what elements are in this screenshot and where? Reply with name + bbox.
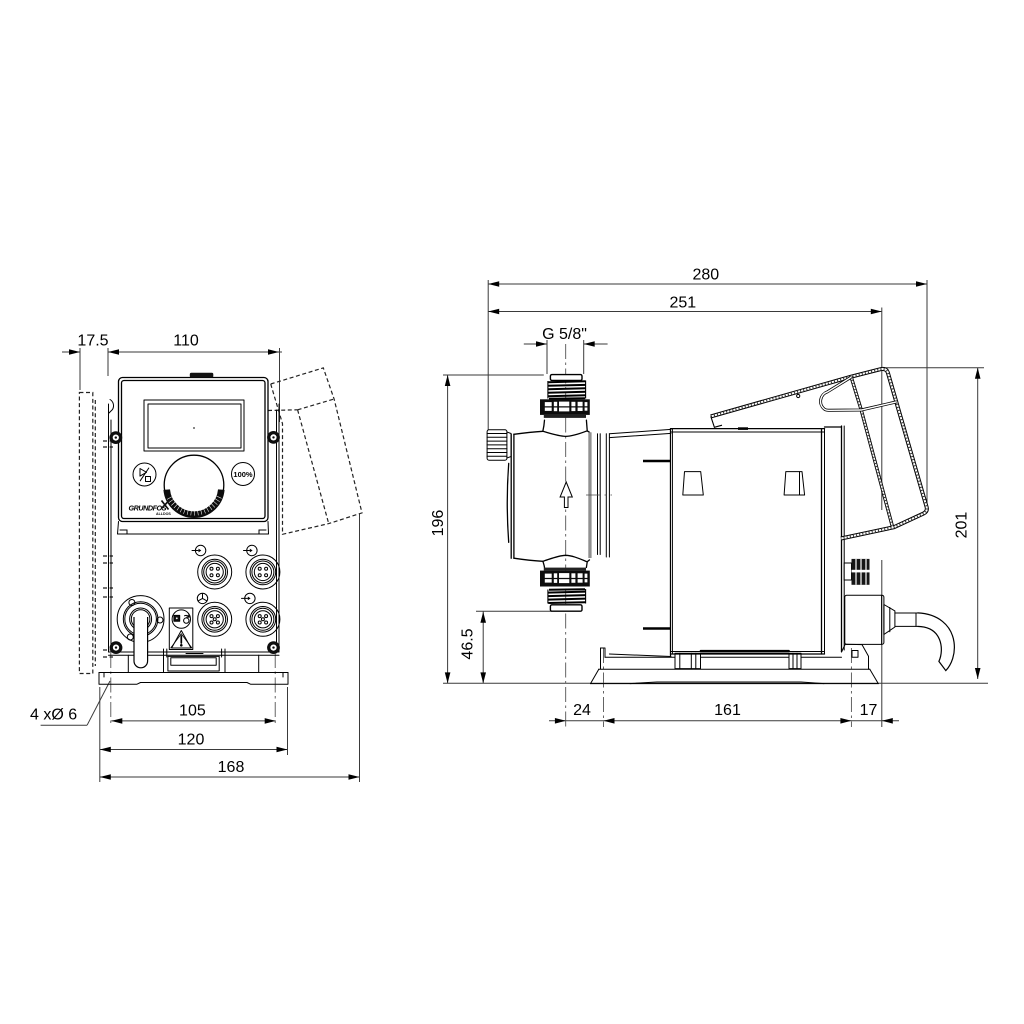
svg-text:201: 201	[954, 512, 971, 539]
svg-text:105: 105	[179, 702, 206, 719]
svg-text:4 xØ 6: 4 xØ 6	[30, 706, 77, 723]
svg-text:17.5: 17.5	[77, 333, 108, 350]
svg-text:196: 196	[430, 510, 447, 537]
svg-text:G 5/8": G 5/8"	[542, 326, 587, 343]
svg-text:17: 17	[860, 702, 878, 719]
svg-text:251: 251	[669, 294, 696, 311]
svg-text:ALLDOS: ALLDOS	[156, 512, 171, 516]
svg-text:280: 280	[692, 267, 719, 284]
svg-text:100%: 100%	[233, 470, 253, 479]
svg-text:120: 120	[178, 731, 205, 748]
svg-text:161: 161	[714, 702, 741, 719]
svg-text:46.5: 46.5	[460, 628, 477, 659]
svg-text:168: 168	[218, 759, 245, 776]
svg-text:110: 110	[173, 333, 199, 350]
svg-text:24: 24	[573, 702, 591, 719]
